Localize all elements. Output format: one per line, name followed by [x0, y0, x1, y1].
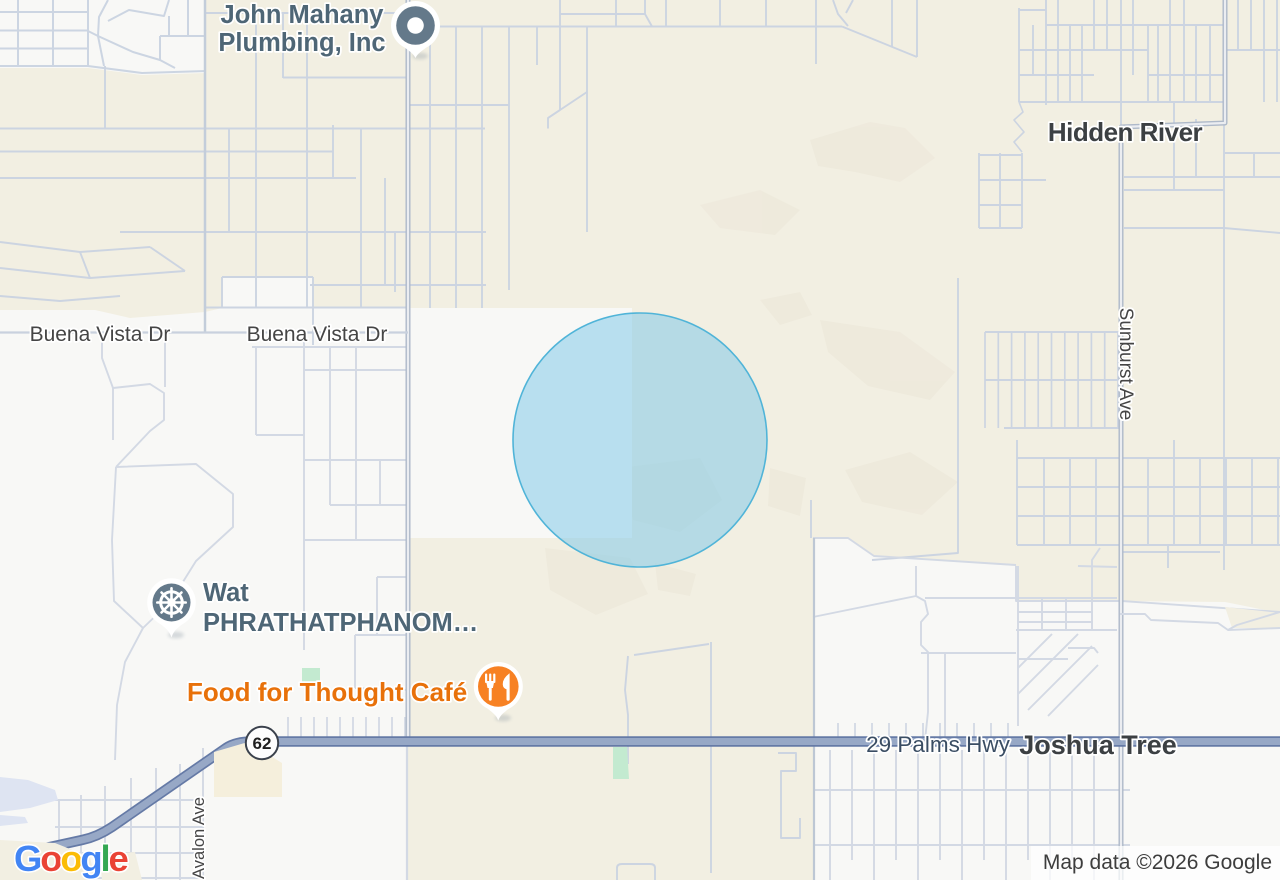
- svg-text:Buena Vista Dr: Buena Vista Dr: [247, 323, 388, 346]
- svg-text:Plumbing, Inc: Plumbing, Inc: [218, 29, 385, 57]
- svg-text:Hidden River: Hidden River: [1048, 117, 1203, 147]
- svg-text:Food for Thought Café: Food for Thought Café: [187, 677, 467, 707]
- svg-text:Google: Google: [14, 838, 128, 879]
- svg-text:29 Palms Hwy: 29 Palms Hwy: [866, 732, 1011, 757]
- svg-text:PHRATHATPHANOM…: PHRATHATPHANOM…: [203, 609, 478, 637]
- svg-text:Map data ©2026 Google: Map data ©2026 Google: [1043, 851, 1272, 874]
- svg-text:Joshua Tree: Joshua Tree: [1019, 730, 1177, 760]
- svg-text:Avalon Ave: Avalon Ave: [190, 797, 208, 879]
- svg-text:62: 62: [253, 734, 272, 753]
- svg-text:Buena Vista Dr: Buena Vista Dr: [30, 323, 171, 346]
- svg-text:John Mahany: John Mahany: [221, 1, 385, 29]
- svg-text:Sunburst Ave: Sunburst Ave: [1115, 308, 1136, 421]
- svg-text:Wat: Wat: [203, 579, 249, 607]
